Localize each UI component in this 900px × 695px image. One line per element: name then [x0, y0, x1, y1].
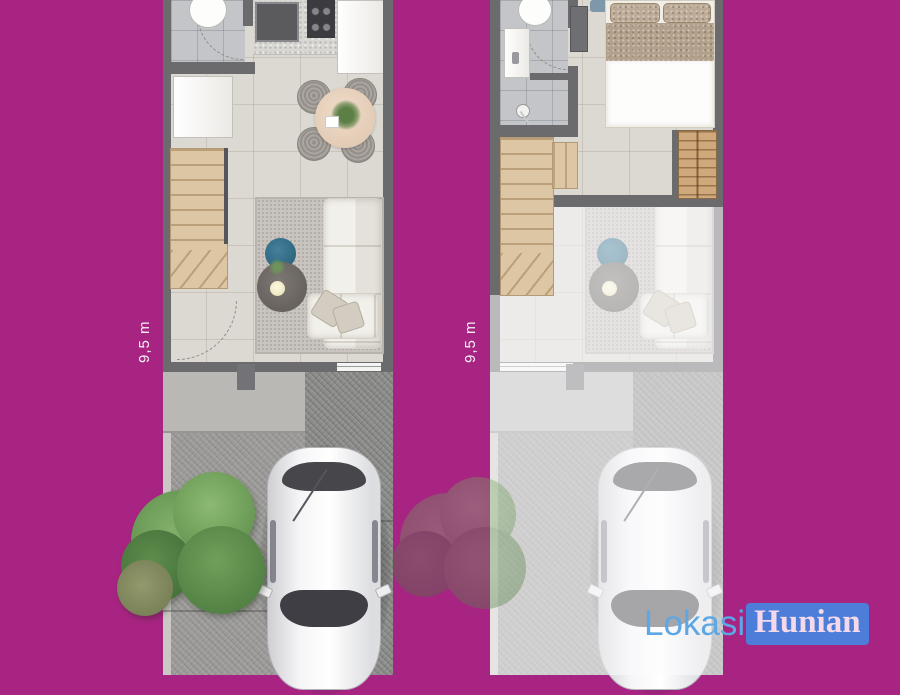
dresser — [678, 130, 717, 199]
tree-foliage — [177, 526, 265, 614]
decor-plant-icon — [269, 258, 285, 276]
brochure-page: { "background_color": "#a82483", "waterm… — [0, 0, 900, 675]
ground-floor-plan — [163, 0, 393, 675]
porch-pillar — [237, 364, 255, 390]
bathroom-wall — [163, 62, 255, 74]
dimension-label-ground: 9,5 m — [136, 287, 153, 363]
porch — [163, 372, 305, 433]
basin-faucet-icon — [512, 52, 519, 64]
logo-text-lokasi: Lokasi — [644, 604, 745, 644]
front-window — [337, 363, 381, 371]
door-arc-icon — [526, 28, 568, 70]
front-door-swing — [177, 300, 237, 360]
stair-wall-stub — [490, 205, 500, 295]
table-dish — [325, 116, 339, 128]
stairs — [500, 137, 554, 255]
stairs-winder — [170, 250, 228, 289]
bed-pillow — [610, 3, 660, 23]
stairs — [170, 148, 228, 252]
bathroom-side-wall — [243, 0, 253, 26]
bed-blanket — [606, 23, 714, 61]
refrigerator — [337, 0, 385, 74]
car-side-window — [270, 520, 276, 583]
bathroom-wall — [490, 125, 578, 137]
right-wall — [383, 0, 393, 372]
stove — [307, 0, 335, 38]
cabinet — [570, 6, 588, 52]
bed-sheet — [608, 61, 712, 125]
car-rear-window — [282, 462, 366, 491]
kitchen-sink — [255, 2, 299, 42]
dimension-label-upper: 9,5 m — [462, 287, 479, 363]
upper-floor-plan — [490, 0, 723, 675]
tree — [121, 472, 269, 620]
watermark-logo: LokasiHunian — [644, 603, 869, 645]
car-windshield — [280, 590, 369, 626]
stair-railing — [224, 148, 228, 244]
car-side-window — [372, 520, 378, 583]
tree-foliage — [444, 527, 526, 609]
wardrobe — [173, 76, 233, 138]
stairs-landing — [552, 142, 578, 189]
tree-faded — [392, 477, 528, 613]
logo-text-hunian: Hunian — [746, 603, 868, 645]
double-bed — [605, 0, 715, 128]
stairs-winder — [500, 253, 554, 296]
table-lamp — [270, 281, 285, 296]
tree-foliage — [117, 560, 173, 616]
car — [267, 447, 381, 690]
door-arc-icon — [177, 300, 237, 360]
bed-pillow — [663, 3, 711, 23]
bathroom-door-swing — [526, 28, 568, 70]
